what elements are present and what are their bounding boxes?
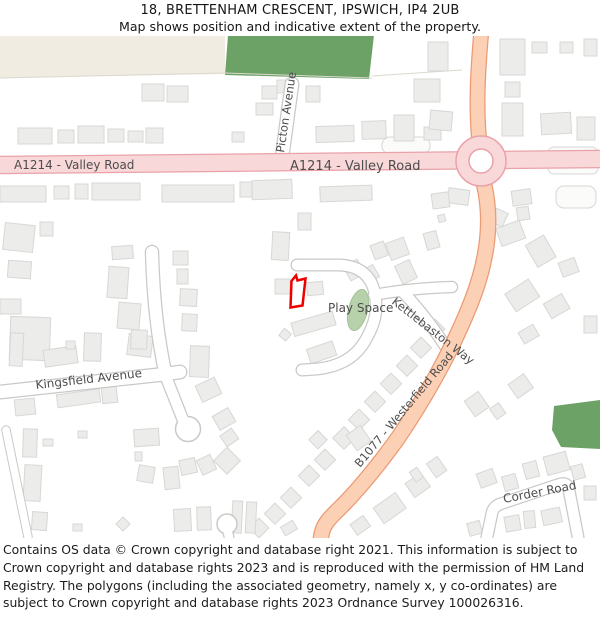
property-boundary-polygon: [291, 276, 306, 308]
page: A1214 - Valley Road A1214 - Valley Road …: [0, 0, 600, 625]
page-title: 18, BRETTENHAM CRESCENT, IPSWICH, IP4 2U…: [0, 0, 600, 18]
road-label-valley-left: A1214 - Valley Road: [14, 158, 134, 172]
footer: Contains OS data © Crown copyright and d…: [0, 538, 600, 625]
page-subtitle: Map shows position and indicative extent…: [0, 19, 600, 34]
label-play-space: Play Space: [328, 301, 393, 315]
map-canvas: A1214 - Valley Road A1214 - Valley Road …: [0, 0, 600, 625]
road-label-valley-center: A1214 - Valley Road: [290, 159, 420, 174]
green-area-bottom-right: [552, 400, 600, 449]
copyright-text: Contains OS data © Crown copyright and d…: [0, 538, 600, 612]
header: 18, BRETTENHAM CRESCENT, IPSWICH, IP4 2U…: [0, 0, 600, 36]
buildings: [0, 39, 597, 538]
green-area-top: [225, 35, 374, 79]
residential-area: [0, 35, 225, 78]
roundabout: [456, 136, 506, 186]
